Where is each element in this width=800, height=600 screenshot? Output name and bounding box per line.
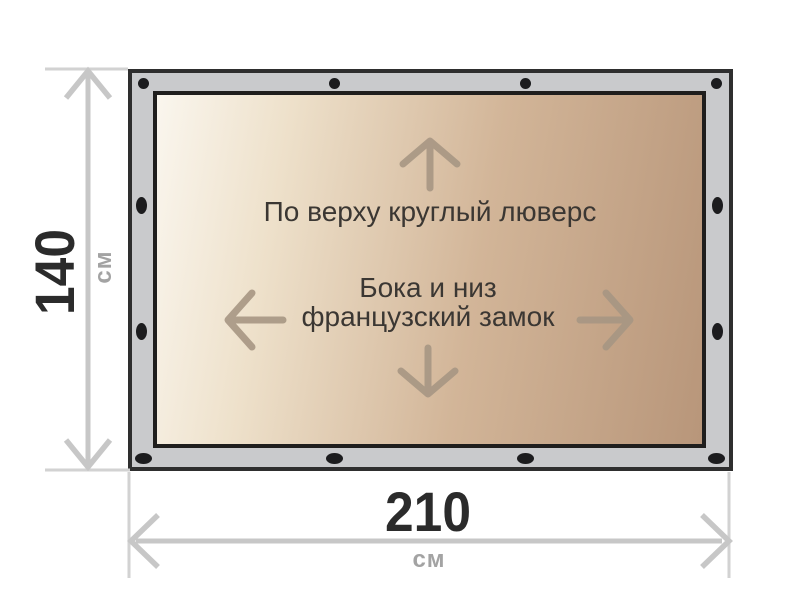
tarp-dimension-diagram: По верху круглый люверс Бока и низ франц… <box>0 0 800 600</box>
note-top-grommets: По верху круглый люверс <box>230 196 630 228</box>
width-dimension-value: 210 <box>327 484 529 540</box>
height-dimension-value: 140 <box>27 171 83 373</box>
note-sides-bottom-line2: французский замок <box>228 302 628 331</box>
note-sides-bottom-line1: Бока и низ <box>228 273 628 302</box>
width-dimension-unit: см <box>389 548 469 572</box>
note-sides-bottom-lock: Бока и низ французский замок <box>228 273 628 331</box>
arrow-down-icon <box>401 348 455 394</box>
arrow-up-icon <box>403 141 457 188</box>
height-dimension-unit: см <box>92 227 116 307</box>
